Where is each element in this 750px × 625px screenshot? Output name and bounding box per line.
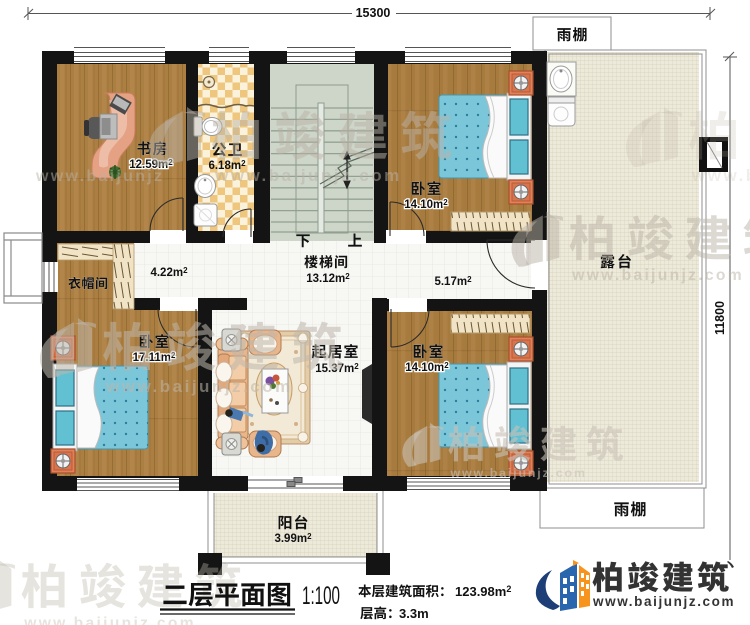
- svg-text:5.17m2: 5.17m2: [434, 275, 472, 288]
- svg-text:www.baijunjz: www.baijunjz: [35, 168, 164, 185]
- svg-text:14.10m2: 14.10m2: [404, 198, 448, 211]
- svg-text:www.baijunjz.com: www.baijunjz.com: [592, 594, 735, 609]
- svg-text:1:100: 1:100: [302, 582, 340, 610]
- svg-text:13.12m2: 13.12m2: [306, 272, 350, 285]
- svg-text:3.3m: 3.3m: [399, 606, 429, 621]
- svg-text:3.99m2: 3.99m2: [274, 532, 312, 545]
- svg-text:15300: 15300: [356, 6, 391, 20]
- svg-text:4.22m2: 4.22m2: [150, 266, 188, 279]
- svg-text:11800: 11800: [713, 301, 727, 335]
- svg-text:123.98m2: 123.98m2: [455, 584, 511, 599]
- svg-text:14.10m2: 14.10m2: [405, 361, 449, 374]
